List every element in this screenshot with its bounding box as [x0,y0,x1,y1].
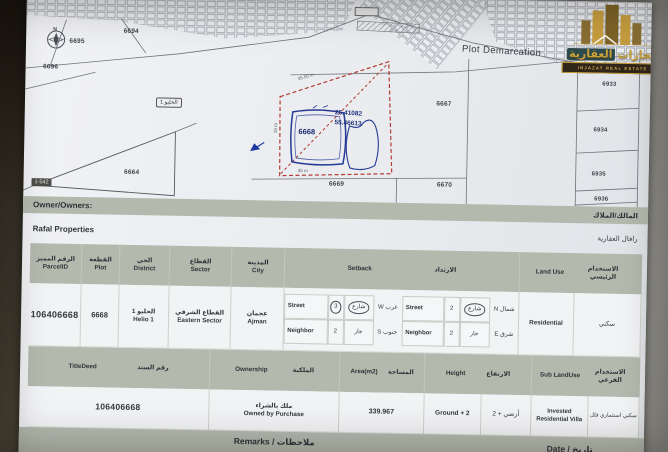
plot-label: 6934 [588,127,612,133]
plot-label: 6935 [587,171,611,177]
sheet-number-tag: 1-542 [31,178,51,186]
header-height: Height الارتفاع [425,353,533,395]
measurement-bottom: 35 m [298,168,308,173]
parcel-table-row: 106406668 6668 الحليو 1 Helio 1 القطاع ا… [28,283,641,357]
owner-label-en: Owner/Owners: [33,200,92,210]
header-parcelid: الرقم المميز ParcelID [30,243,83,284]
cell-setback: Street 3 شارع غرب W Street 2 شارع شمال N… [283,288,519,355]
logo-arabic-word1: انجازات [617,49,651,62]
setback-type: Neighbor [401,321,443,347]
plot-label: 6664 [120,169,144,176]
plot-coordinates: 25.41082 55.46613 [334,108,362,129]
cell-area: 339.967 [339,392,425,435]
cell-landuse-en: Residential [518,292,574,356]
cell-ownership: ملك بالشراء Owned by Purchase [209,389,340,432]
setback-direction: شمال N [490,298,519,324]
header-ownership: Ownership الملكية [210,349,341,391]
header-plot: القطعة Plot [82,244,121,285]
plot-label: 6670 [432,181,456,188]
setback-direction: جنوب S [373,320,401,346]
header-sublanduse: Sub LandUse الاستخدام الفرعي [532,355,641,397]
header-district: الحي District [120,245,171,286]
remarks-label: Remarks / ملاحظات [234,436,315,448]
map-drawing [23,0,652,207]
parcel-table: الرقم المميز ParcelID القطعة Plot الحي D… [28,243,642,357]
plot-label: 6694 [119,28,143,35]
cell-parcelid: 106406668 [28,283,81,347]
cell-height-en: Ground + 2 [424,393,482,435]
setback-mark: شارع [460,297,490,323]
setback-type: Neighbor [283,319,327,345]
setback-direction: شرق E [489,323,518,349]
cell-titledeed: 106406668 [27,386,210,430]
cell-city: عجمان Ajman [230,287,284,351]
owner-label-ar: المالك/الملاك [593,211,638,220]
setback-value: 2 [327,320,343,345]
document-photo: N 6694 6695 6696 6664 6667 6669 6670 693… [0,0,668,452]
plot-label: 6669 [324,180,348,187]
plot-label: 6936 [589,196,613,202]
plot-label: 6667 [432,100,456,107]
header-city: المدينة City [232,247,286,288]
logo-skyline-icon [563,2,652,46]
subject-plot-label: 6668 [298,127,315,136]
plot-label: 6933 [597,81,621,87]
city-blocks-band [26,0,357,41]
cell-plot: 6668 [80,284,119,348]
setback-value: 2 [443,322,459,347]
header-titledeed: TitleDeed رقم السند [28,346,211,389]
city-blocks-rotated [360,0,498,70]
setback-value: 3 [328,295,344,320]
plot-6664-triangle [34,129,175,196]
map-mini-tag [355,7,379,16]
coordinate-lng: 55.46613 [334,118,362,129]
injazat-logo: انجازات العقارية INJAZAT REAL ESTATE [562,2,652,74]
cell-landuse-ar: سكني [573,293,641,357]
cell-district: الحليو 1 Helio 1 [118,285,169,349]
setback-mark: شارع [344,295,374,321]
header-area: Area(m2) المساحة [340,352,426,394]
cell-sublanduse-en: Invested Residential Villa [531,395,589,437]
owner-name-ar: رافال العقارية [597,234,637,243]
plot-label: 6695 [65,38,89,45]
logo-arabic-word2: العقارية [567,48,615,61]
setback-mark: جار [343,320,373,346]
header-landuse: Land Use الاستخدام الرئيسي [520,252,643,294]
compass-north-label: N [53,26,57,32]
compass-icon [47,31,64,48]
setback-type: Street [284,294,328,320]
owner-name-en: Rafal Properties [33,224,95,234]
setback-grid: Street 3 شارع غرب W Street 2 شارع شمال N… [283,294,519,348]
cell-height-ar: أرضي + 2 [481,394,532,436]
setback-type: Street [402,296,444,322]
setback-mark: جار [459,322,489,348]
certificate-paper: N 6694 6695 6696 6664 6667 6669 6670 693… [18,0,652,452]
cadastral-map: N 6694 6695 6696 6664 6667 6669 6670 693… [23,0,652,207]
location-arrow-icon [250,142,264,151]
deed-table: TitleDeed رقم السند Ownership الملكية Ar… [27,346,640,438]
plot-label: 6696 [39,63,63,70]
district-tag: الحليو 1 [156,97,182,107]
header-sector: القطاع Sector [170,246,233,287]
logo-english-name: INJAZAT REAL ESTATE [562,61,652,74]
date-label: Date / تاريخ [547,444,593,452]
measurement-left: 25 m [273,123,278,133]
logo-arabic-name: انجازات العقارية [562,49,652,62]
setback-value: 2 [444,297,460,322]
header-setback: Setback الارتداد [285,248,521,292]
setback-direction: غرب W [374,295,402,321]
cell-sublanduse-ar: سكني استثماري فلل [588,396,640,438]
cell-sector: القطاع الشرقي Eastern Sector [168,286,231,350]
